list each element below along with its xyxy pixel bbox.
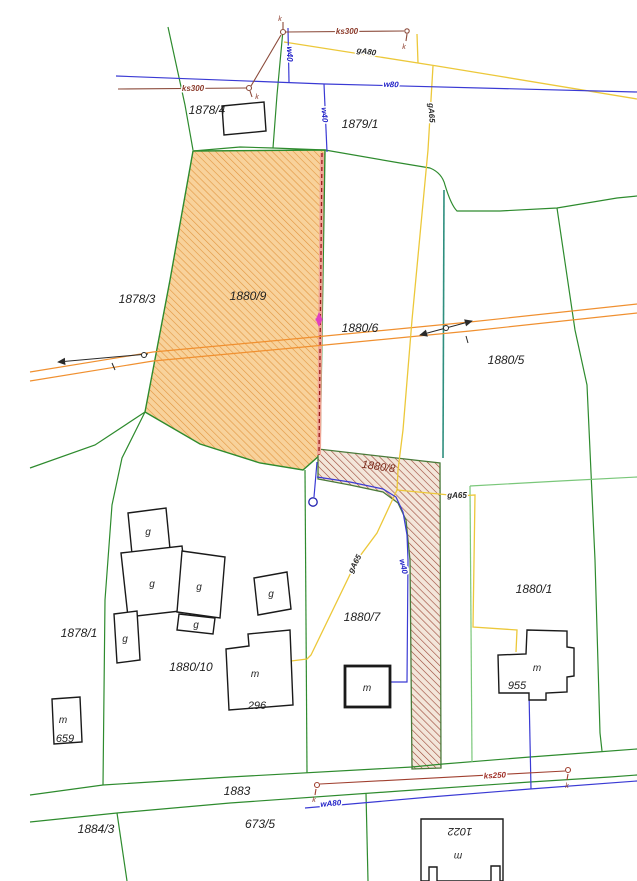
hydrant-symbol	[309, 498, 317, 506]
building-number-296: 296	[247, 700, 267, 712]
span-node	[444, 326, 449, 331]
sewer-lines-ks300	[118, 22, 409, 97]
water-line-to-m7	[317, 477, 408, 682]
map-svg: 1878/4 1879/1 1878/3 1880/9 1880/6 1880/…	[0, 0, 637, 881]
building-number-659: 659	[56, 733, 74, 745]
parcel-label-673-5: 673/5	[245, 817, 275, 831]
parcel-label-1880-1: 1880/1	[516, 582, 553, 596]
label-w40: w40	[285, 46, 294, 62]
building-label-m-rotated: m	[454, 850, 462, 861]
building-number-1022-rotated: 1022	[448, 825, 472, 837]
span-node	[142, 353, 147, 358]
parcel-label-1880-10: 1880/10	[169, 660, 213, 674]
boundary-line	[470, 486, 472, 762]
building-label-g: g	[196, 582, 202, 593]
manhole-symbol	[247, 86, 252, 91]
manhole-tick	[250, 91, 252, 97]
building-label-g: g	[145, 527, 151, 538]
power-line-upper	[30, 304, 637, 372]
sewer-lines-ks250	[315, 768, 571, 796]
manhole-tick	[406, 34, 407, 41]
building-label-g: g	[149, 579, 155, 590]
gas-lines	[284, 34, 637, 661]
building-number-955: 955	[508, 680, 527, 692]
label-k: k	[565, 783, 569, 790]
manhole-symbol	[566, 768, 571, 773]
building-1878-4	[222, 102, 266, 135]
label-w40: w40	[319, 107, 329, 123]
parcel-label-1880-9: 1880/9	[230, 289, 267, 303]
sewer-ks300-diagonal	[251, 35, 281, 86]
building-label-m: m	[533, 663, 541, 674]
water-hydrant-stub	[314, 462, 317, 497]
boundary-line	[273, 30, 283, 148]
manhole-symbol	[281, 30, 286, 35]
boundary-line	[117, 813, 127, 881]
manhole-symbol	[315, 783, 320, 788]
label-k: k	[312, 797, 316, 804]
parcel-1880-8-polygon	[318, 449, 441, 769]
boundary-line	[366, 793, 368, 881]
boundary-line	[30, 412, 145, 468]
label-gA65: gA65	[446, 491, 467, 500]
parcel-label-1883: 1883	[224, 784, 251, 798]
building-m-296	[226, 630, 293, 710]
parcel-1880-9-polygon	[145, 150, 325, 470]
boundary-line	[470, 477, 637, 486]
manhole-tick	[315, 789, 316, 795]
label-ks250: ks250	[484, 770, 507, 780]
parcel-label-1878-4: 1878/4	[189, 103, 226, 117]
label-ks300: ks300	[182, 84, 205, 93]
label-w80: w80	[383, 80, 399, 90]
span-arrow-left	[58, 354, 148, 362]
label-gA65: gA65	[346, 553, 364, 576]
label-wA80: wA80	[320, 798, 342, 809]
building-label-m: m	[251, 669, 259, 680]
parcel-label-1880-6: 1880/6	[342, 321, 379, 335]
label-k: k	[255, 94, 259, 101]
parcel-label-1879-1: 1879/1	[342, 117, 379, 131]
power-lines	[30, 304, 637, 381]
boundary-line	[325, 150, 637, 211]
label-w40: w40	[397, 558, 409, 575]
label-k: k	[278, 16, 282, 23]
boundary-line	[305, 470, 307, 773]
parcel-label-1878-1: 1878/1	[61, 626, 98, 640]
label-gA65: gA65	[426, 102, 436, 124]
parcel-1880-9-area	[145, 150, 325, 470]
power-line-lower	[30, 313, 637, 381]
water-service-955	[529, 692, 531, 789]
building-label-m: m	[59, 715, 67, 726]
building-label-g: g	[122, 634, 128, 645]
label-gA80: gA80	[355, 45, 377, 57]
cadastral-map: 1878/4 1879/1 1878/3 1880/9 1880/6 1880/…	[0, 0, 637, 881]
span-tick	[466, 336, 468, 343]
parcel-label-1880-7: 1880/7	[344, 610, 382, 624]
parcel-label-1880-5: 1880/5	[488, 353, 525, 367]
parcel-label-1884-3: 1884/3	[78, 822, 115, 836]
gas-stub	[417, 34, 418, 63]
parcel-label-1878-3: 1878/3	[119, 292, 156, 306]
label-k: k	[402, 44, 406, 51]
manhole-symbol	[405, 29, 409, 33]
parcel-1880-1-boundaries	[470, 477, 637, 762]
building-label-g: g	[268, 589, 274, 600]
building-label-g: g	[193, 620, 199, 631]
parcel-1880-8-area	[318, 449, 441, 769]
building-label-m: m	[363, 683, 371, 694]
label-ks300: ks300	[336, 27, 359, 36]
span-tick	[112, 363, 115, 370]
